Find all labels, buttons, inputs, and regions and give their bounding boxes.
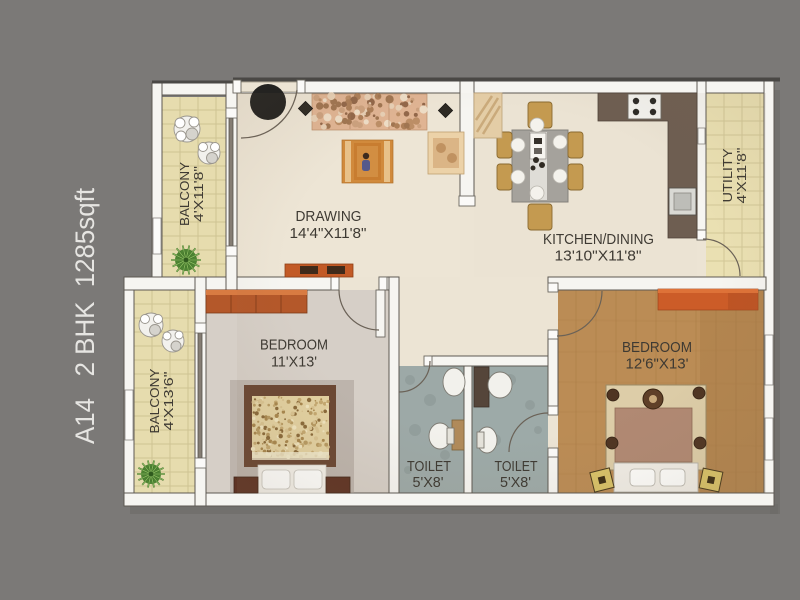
svg-text:5'X8': 5'X8': [413, 474, 444, 491]
svg-text:4'X13'6": 4'X13'6": [161, 371, 176, 430]
svg-text:A14 2 BHK 1285sqft: A14 2 BHK 1285sqft: [70, 188, 100, 444]
svg-text:TOILET: TOILET: [407, 458, 451, 475]
svg-text:KITCHEN/DINING: KITCHEN/DINING: [543, 231, 654, 248]
svg-text:UTILITY: UTILITY: [720, 148, 735, 202]
svg-text:11'X13': 11'X13': [271, 354, 317, 371]
svg-text:12'6"X13': 12'6"X13': [626, 356, 689, 373]
svg-text:BALCONY: BALCONY: [177, 162, 192, 226]
svg-text:14'4"X11'8": 14'4"X11'8": [290, 225, 367, 242]
svg-text:TOILET: TOILET: [495, 458, 538, 475]
svg-text:BEDROOM: BEDROOM: [260, 337, 328, 354]
svg-text:DRAWING: DRAWING: [296, 208, 362, 225]
svg-text:4'X11'8": 4'X11'8": [734, 147, 749, 203]
svg-text:4'X11'8": 4'X11'8": [191, 166, 206, 222]
svg-text:5'X8': 5'X8': [500, 474, 531, 491]
svg-text:BEDROOM: BEDROOM: [622, 339, 692, 356]
svg-text:13'10"X11'8": 13'10"X11'8": [555, 248, 642, 265]
svg-text:BALCONY: BALCONY: [147, 368, 162, 433]
